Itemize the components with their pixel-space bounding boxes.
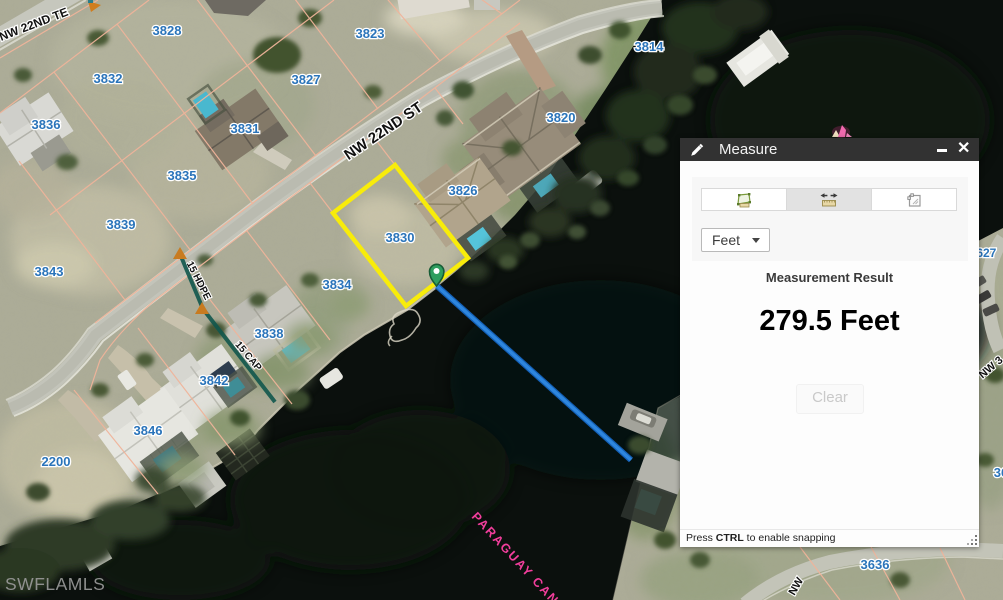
svg-text:SWFLAMLS: SWFLAMLS	[5, 574, 105, 594]
svg-text:3827: 3827	[292, 72, 321, 87]
svg-text:3846: 3846	[134, 423, 163, 438]
svg-text:3830: 3830	[386, 230, 415, 245]
svg-text:3831: 3831	[231, 121, 260, 136]
svg-text:3636: 3636	[861, 557, 890, 572]
svg-text:3820: 3820	[547, 110, 576, 125]
svg-text:3839: 3839	[107, 217, 136, 232]
svg-text:3842: 3842	[200, 373, 229, 388]
svg-text:3836: 3836	[32, 117, 61, 132]
svg-text:3843: 3843	[35, 264, 64, 279]
svg-text:3834: 3834	[323, 277, 353, 292]
svg-text:2200: 2200	[42, 454, 71, 469]
svg-text:3838: 3838	[255, 326, 284, 341]
svg-text:3826: 3826	[449, 183, 478, 198]
svg-text:36: 36	[994, 465, 1003, 480]
svg-text:3823: 3823	[356, 26, 385, 41]
svg-text:3814: 3814	[635, 39, 665, 54]
svg-text:3835: 3835	[168, 168, 197, 183]
svg-text:3832: 3832	[94, 71, 123, 86]
svg-text:3828: 3828	[153, 23, 182, 38]
